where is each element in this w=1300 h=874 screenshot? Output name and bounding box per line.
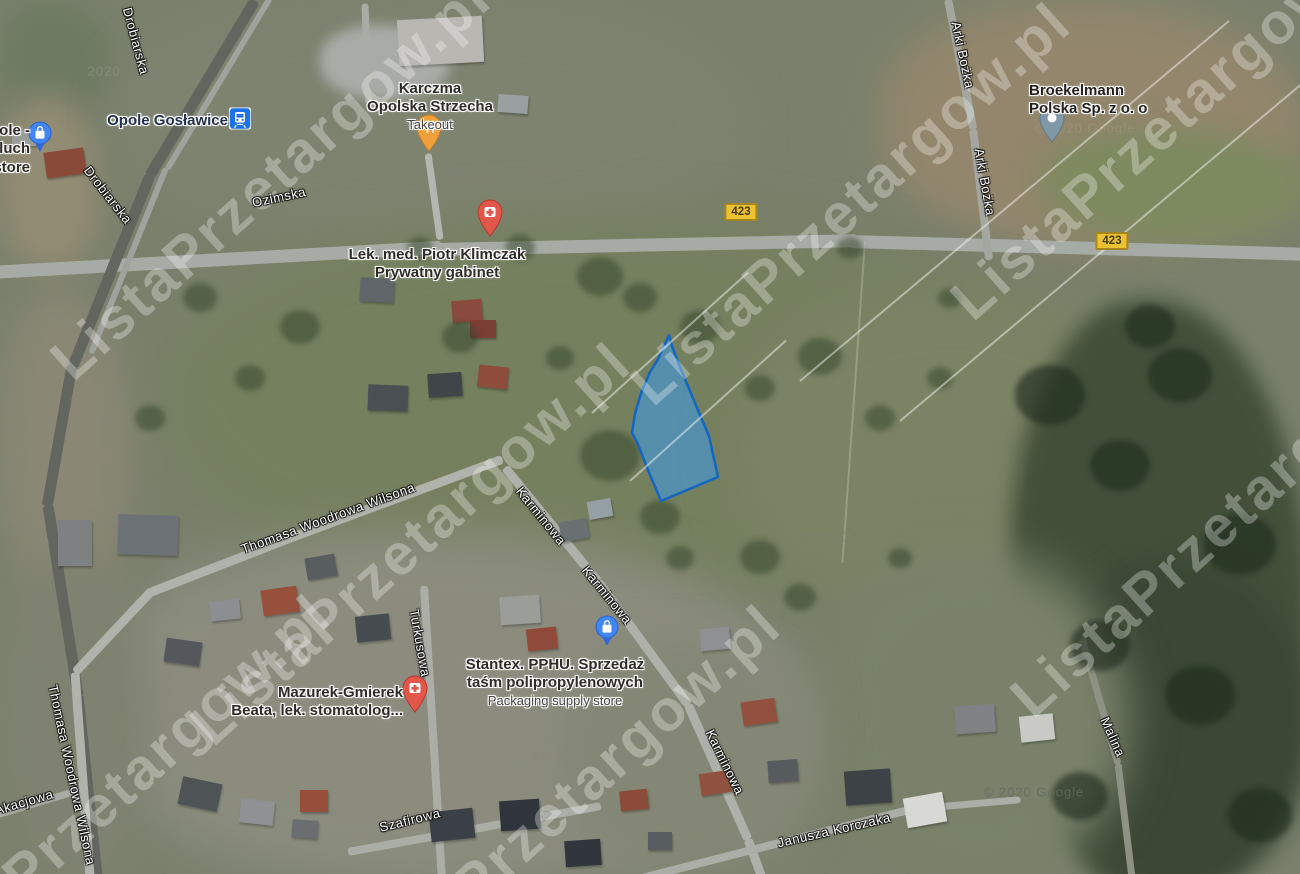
building (699, 627, 731, 652)
building (740, 698, 777, 726)
building (497, 94, 528, 114)
poi-label-line: Lek. med. Piotr Klimczak (349, 246, 526, 264)
transit-pin-opole-goslawice-station[interactable] (229, 108, 251, 135)
map-attribution: © 2020 Google (984, 785, 1085, 800)
poi-label-edge-store[interactable]: ole -aluchstore (0, 122, 30, 177)
tree-cluster (865, 405, 895, 431)
tree-cluster (740, 540, 780, 574)
building (117, 514, 178, 556)
tree-cluster (784, 584, 816, 611)
building (844, 768, 892, 805)
tree-cluster (1228, 788, 1292, 842)
poi-label-line: Prywatny gabinet (349, 264, 526, 282)
tree-cluster (837, 237, 863, 259)
tree-cluster (1148, 348, 1212, 402)
poi-label-karczma-opolska-strzecha[interactable]: KarczmaOpolska StrzechaTakeout (367, 80, 493, 132)
poi-label-line: taśm polipropylenowych (466, 674, 644, 692)
poi-label-line: Beata, lek. stomatolog... (231, 702, 403, 720)
building (526, 626, 558, 651)
satellite-map[interactable]: ListaPrzetargow.plListaPrzetargow.plList… (0, 0, 1300, 874)
poi-subtitle: Takeout (367, 117, 493, 133)
poi-label-klimczak-gabinet[interactable]: Lek. med. Piotr KlimczakPrywatny gabinet (349, 246, 526, 283)
tree-cluster (666, 546, 694, 570)
building (164, 638, 203, 667)
poi-label-line: Polska Sp. z o. o (1029, 100, 1147, 118)
poi-label-stantex-pphu[interactable]: Stantex. PPHU. Sprzedażtaśm polipropylen… (466, 656, 644, 708)
poi-label-line: Mazurek-Gmierek (231, 684, 403, 702)
shopping-pin-edge-store[interactable] (28, 121, 52, 158)
medical-pin-klimczak-gabinet[interactable] (477, 199, 503, 242)
building (767, 759, 798, 783)
building (499, 799, 541, 832)
building (1019, 713, 1056, 742)
building (954, 704, 996, 735)
tree-cluster (183, 283, 217, 312)
tree-cluster (442, 322, 478, 353)
building (368, 384, 409, 411)
tree-cluster (580, 430, 640, 481)
tree-cluster (577, 257, 623, 296)
poi-label-line: aluch (0, 140, 30, 158)
building (397, 16, 484, 66)
poi-label-mazurek-gmierek[interactable]: Mazurek-GmierekBeata, lek. stomatolog... (231, 684, 403, 721)
tree-cluster (1125, 305, 1175, 348)
tree-cluster (640, 500, 680, 534)
building (619, 789, 649, 812)
building (260, 586, 299, 617)
poi-subtitle: Packaging supply store (466, 693, 644, 709)
poi-label-line: Broekelmann (1029, 82, 1147, 100)
building (300, 790, 328, 812)
building (355, 613, 392, 642)
poi-label-line: Stantex. PPHU. Sprzedaż (466, 656, 644, 674)
tree-cluster (235, 365, 265, 391)
poi-label-opole-goslawice-station[interactable]: Opole Gosławice (107, 112, 228, 130)
poi-label-line: store (0, 159, 30, 177)
map-attribution: © 2020 Google (788, 530, 889, 545)
poi-label-line: Opolska Strzecha (367, 98, 493, 116)
route-shield: 423 (724, 203, 757, 221)
building (209, 598, 241, 621)
building (239, 798, 275, 825)
building (499, 595, 541, 626)
tree-cluster (1204, 514, 1276, 575)
building (477, 364, 509, 389)
building (648, 832, 672, 850)
route-shield: 423 (1095, 232, 1128, 250)
poi-label-broekelmann-polska[interactable]: BroekelmannPolska Sp. z o. o (1029, 82, 1147, 119)
poi-label-line: Karczma (367, 80, 493, 98)
street-label: Drobiarska (120, 6, 152, 76)
shopping-pin-stantex-pphu[interactable] (595, 615, 619, 652)
building (291, 819, 318, 839)
tree-cluster (1165, 665, 1235, 725)
poi-label-line: ole - (0, 122, 30, 140)
poi-label-line: Opole Gosławice (107, 112, 228, 130)
tree-cluster (546, 346, 574, 370)
building (427, 372, 463, 398)
tree-cluster (135, 405, 165, 431)
tree-cluster (1015, 365, 1085, 425)
tree-cluster (1090, 440, 1150, 491)
tree-cluster (745, 375, 775, 401)
medical-pin-mazurek-gmierek[interactable] (402, 675, 428, 718)
tree-cluster (280, 310, 320, 344)
tree-cluster (623, 283, 657, 312)
map-attribution: 2020 (88, 64, 121, 79)
tree-cluster (1070, 620, 1130, 671)
building (564, 839, 602, 867)
building (58, 520, 92, 566)
